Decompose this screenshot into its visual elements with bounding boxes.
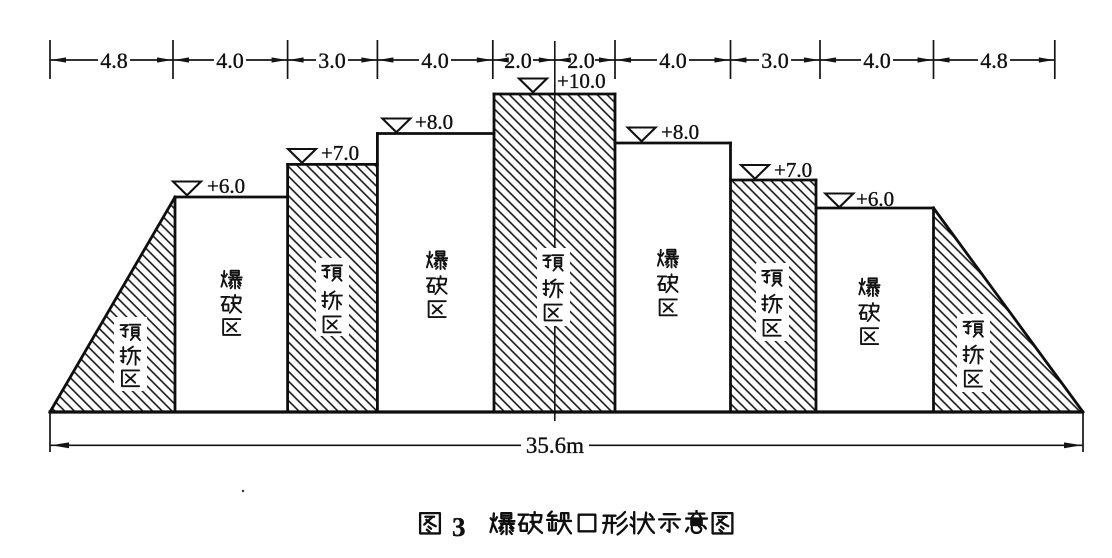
svg-text:4.0: 4.0 xyxy=(863,48,891,73)
svg-text:4.0: 4.0 xyxy=(659,48,687,73)
svg-text:3: 3 xyxy=(452,512,466,542)
svg-text:+6.0: +6.0 xyxy=(856,187,894,211)
svg-text:4.0: 4.0 xyxy=(216,48,244,73)
svg-text:+6.0: +6.0 xyxy=(207,174,245,198)
svg-text:+8.0: +8.0 xyxy=(661,120,699,144)
svg-text:+8.0: +8.0 xyxy=(415,110,453,134)
svg-text:4.8: 4.8 xyxy=(100,48,128,73)
svg-text:+10.0: +10.0 xyxy=(557,69,606,93)
svg-text:+7.0: +7.0 xyxy=(774,158,812,182)
svg-text:4.0: 4.0 xyxy=(421,48,449,73)
svg-text:3.0: 3.0 xyxy=(761,48,789,73)
svg-text:35.6m: 35.6m xyxy=(526,433,584,458)
svg-text:3.0: 3.0 xyxy=(318,48,346,73)
svg-text:4.8: 4.8 xyxy=(980,48,1008,73)
svg-text:2.0: 2.0 xyxy=(504,48,532,73)
svg-text:+7.0: +7.0 xyxy=(321,141,359,165)
